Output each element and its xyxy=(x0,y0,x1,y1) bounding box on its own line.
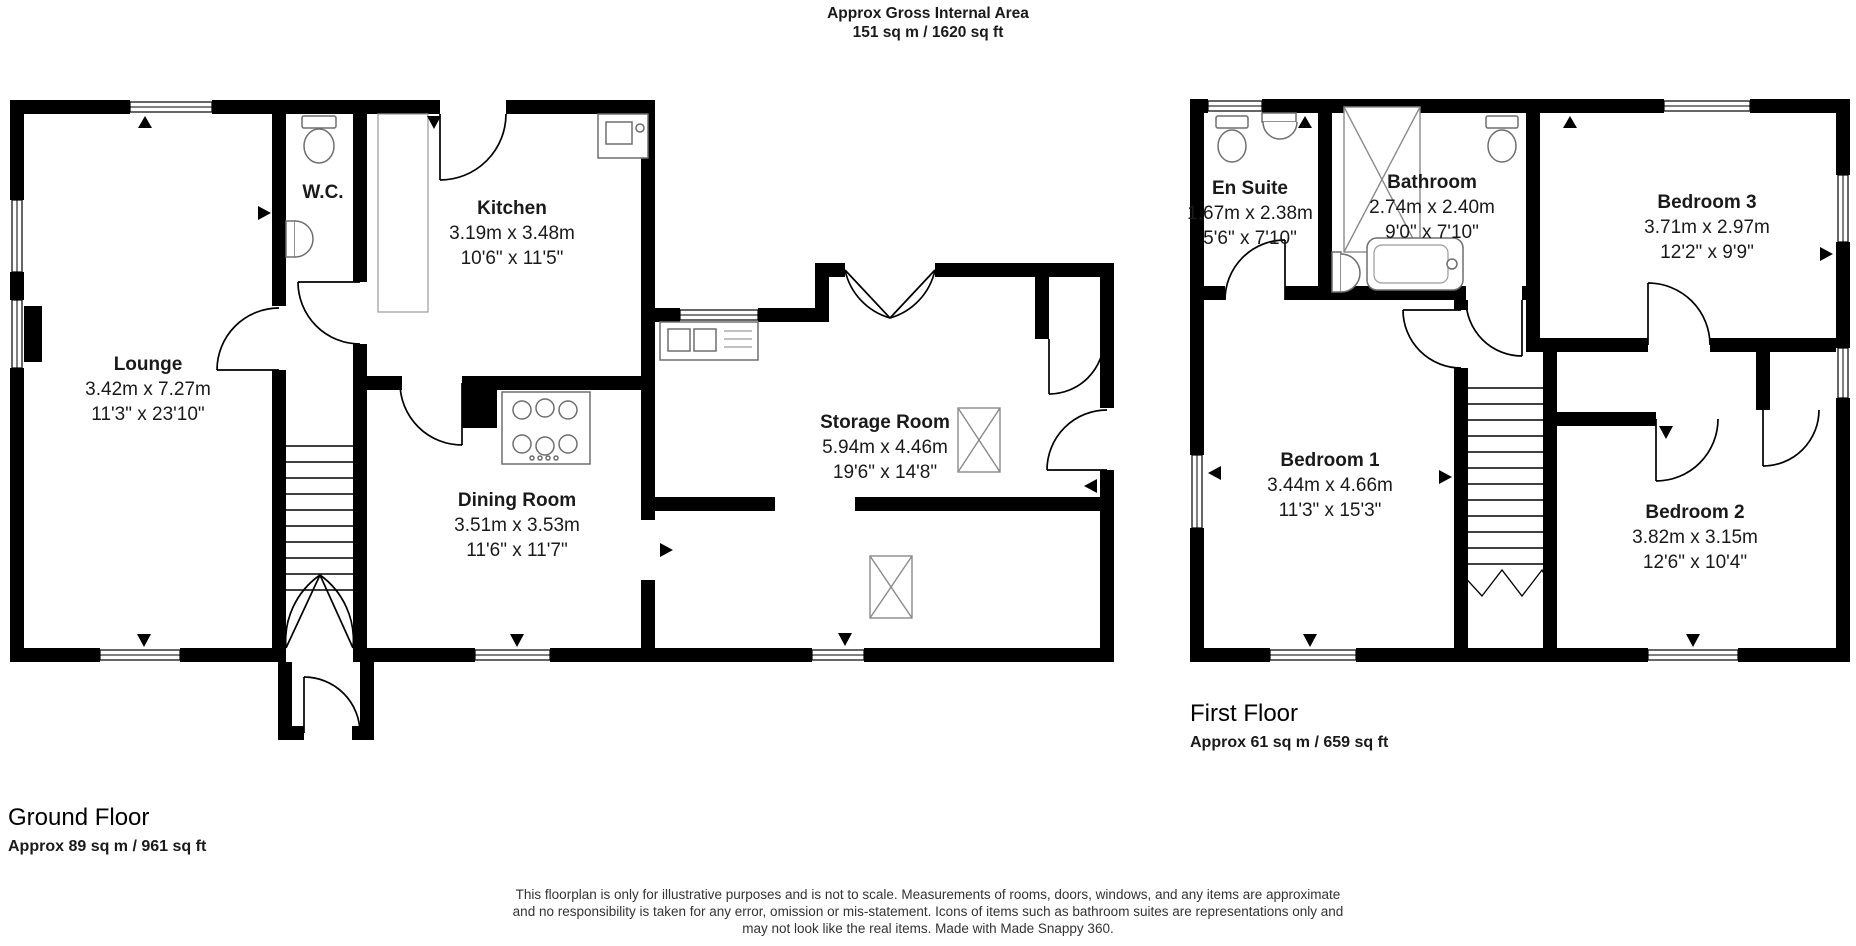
first-floor-label: First Floor Approx 61 sq m / 659 sq ft xyxy=(1190,700,1388,752)
door-arc xyxy=(1047,410,1107,470)
door-arc xyxy=(304,677,360,733)
room-name: Bedroom 3 xyxy=(1644,190,1770,215)
room-label-en-suite: En Suite 1.67m x 2.38m 5'6" x 7'10" xyxy=(1187,176,1313,251)
first-doors xyxy=(1225,240,1819,481)
room-dim-metric: 3.82m x 3.15m xyxy=(1632,525,1758,550)
room-label-dining-room: Dining Room 3.51m x 3.53m 11'6" x 11'7" xyxy=(454,488,580,563)
kitchen-counter xyxy=(378,114,428,312)
wc-toilet-icon xyxy=(302,116,336,163)
door-arc xyxy=(298,282,360,344)
title-line-1: Approx Gross Internal Area xyxy=(0,4,1856,23)
storage-sink-icon xyxy=(660,322,758,360)
staircase-ground xyxy=(286,446,353,590)
crossed-box-icon xyxy=(870,556,912,618)
room-dim-metric: 1.67m x 2.38m xyxy=(1187,201,1313,226)
window xyxy=(10,200,24,272)
room-dim-imperial: 9'0" x 7'10" xyxy=(1369,220,1495,245)
window xyxy=(1836,348,1850,398)
room-name: Storage Room xyxy=(820,410,950,435)
window xyxy=(1208,99,1262,113)
room-name: W.C. xyxy=(302,180,343,205)
ground-floor-label: Ground Floor Approx 89 sq m / 961 sq ft xyxy=(8,804,206,856)
room-name: Dining Room xyxy=(454,488,580,513)
window xyxy=(100,648,180,662)
room-name: Kitchen xyxy=(449,196,575,221)
title-line-2: 151 sq m / 1620 sq ft xyxy=(0,23,1856,42)
crossed-box-icon xyxy=(958,408,1000,472)
window xyxy=(1664,99,1750,113)
window xyxy=(812,648,864,662)
window xyxy=(1648,648,1738,662)
room-label-lounge: Lounge 3.42m x 7.27m 11'3" x 23'10" xyxy=(85,352,211,427)
disclaimer-line-1: This floorplan is only for illustrative … xyxy=(0,886,1856,903)
ensuite-sink-icon xyxy=(1262,113,1297,139)
room-dim-imperial: 11'3" x 23'10" xyxy=(85,402,211,427)
room-label-bathroom: Bathroom 2.74m x 2.40m 9'0" x 7'10" xyxy=(1369,170,1495,245)
door-arc xyxy=(1049,339,1104,394)
room-label-kitchen: Kitchen 3.19m x 3.48m 10'6" x 11'5" xyxy=(449,196,575,271)
window xyxy=(1270,648,1356,662)
room-dim-imperial: 11'6" x 11'7" xyxy=(454,538,580,563)
disclaimer-line-2: and no responsibility is taken for any e… xyxy=(0,903,1856,920)
room-name: Bathroom xyxy=(1369,170,1495,195)
room-dim-metric: 5.94m x 4.46m xyxy=(820,435,950,460)
door-arc xyxy=(440,114,506,180)
window xyxy=(475,648,550,662)
room-dim-imperial: 10'6" x 11'5" xyxy=(449,246,575,271)
room-dim-imperial: 11'3" x 15'3" xyxy=(1267,498,1393,523)
room-name: Bedroom 1 xyxy=(1267,448,1393,473)
floorplan-canvas: Approx Gross Internal Area 151 sq m / 16… xyxy=(0,0,1856,946)
room-label-storage-room: Storage Room 5.94m x 4.46m 19'6" x 14'8" xyxy=(820,410,950,485)
room-dim-metric: 3.51m x 3.53m xyxy=(454,513,580,538)
door-arc xyxy=(1648,283,1710,345)
door-arc xyxy=(1403,310,1461,368)
room-name: En Suite xyxy=(1187,176,1313,201)
room-dim-imperial: 12'6" x 10'4" xyxy=(1632,550,1758,575)
kitchen-sink-icon xyxy=(598,114,648,158)
floor-name: First Floor xyxy=(1190,700,1388,728)
floor-area: Approx 61 sq m / 659 sq ft xyxy=(1190,734,1388,752)
room-dim-metric: 3.19m x 3.48m xyxy=(449,221,575,246)
room-dim-imperial: 12'2" x 9'9" xyxy=(1644,240,1770,265)
room-dim-imperial: 19'6" x 14'8" xyxy=(820,460,950,485)
disclaimer-text: This floorplan is only for illustrative … xyxy=(0,886,1856,937)
room-dim-metric: 3.44m x 4.66m xyxy=(1267,473,1393,498)
room-name: Bedroom 2 xyxy=(1632,500,1758,525)
wc-sink-icon xyxy=(286,221,313,257)
disclaimer-line-3: may not look like the real items. Made w… xyxy=(0,920,1856,937)
bathroom-sink-icon xyxy=(1332,252,1360,292)
window xyxy=(680,308,758,322)
double-door-entrance xyxy=(286,575,354,648)
gross-internal-area-title: Approx Gross Internal Area 151 sq m / 16… xyxy=(0,4,1856,42)
room-dim-metric: 2.74m x 2.40m xyxy=(1369,195,1495,220)
room-dim-imperial: 5'6" x 7'10" xyxy=(1187,226,1313,251)
room-label-bedroom-2: Bedroom 2 3.82m x 3.15m 12'6" x 10'4" xyxy=(1632,500,1758,575)
door-arc xyxy=(1763,410,1819,466)
room-dim-metric: 3.71m x 2.97m xyxy=(1644,215,1770,240)
door-arc xyxy=(400,383,462,445)
room-name: Lounge xyxy=(85,352,211,377)
room-label-wc: W.C. xyxy=(302,180,343,205)
window xyxy=(130,100,212,114)
ensuite-toilet-icon xyxy=(1216,116,1248,162)
floor-name: Ground Floor xyxy=(8,804,206,832)
staircase-first xyxy=(1460,388,1553,596)
room-dim-metric: 3.42m x 7.27m xyxy=(85,377,211,402)
bathroom-toilet-icon xyxy=(1486,116,1518,162)
room-label-bedroom-3: Bedroom 3 3.71m x 2.97m 12'2" x 9'9" xyxy=(1644,190,1770,265)
door-arc xyxy=(217,308,279,370)
room-label-bedroom-1: Bedroom 1 3.44m x 4.66m 11'3" x 15'3" xyxy=(1267,448,1393,523)
bathtub-icon xyxy=(1367,238,1463,290)
hob-icon xyxy=(502,392,590,464)
window xyxy=(1190,455,1204,528)
window xyxy=(1836,175,1850,242)
window xyxy=(10,300,24,368)
double-door-storage xyxy=(845,270,935,318)
floor-area: Approx 89 sq m / 961 sq ft xyxy=(8,838,206,856)
door-arc xyxy=(1466,300,1522,356)
